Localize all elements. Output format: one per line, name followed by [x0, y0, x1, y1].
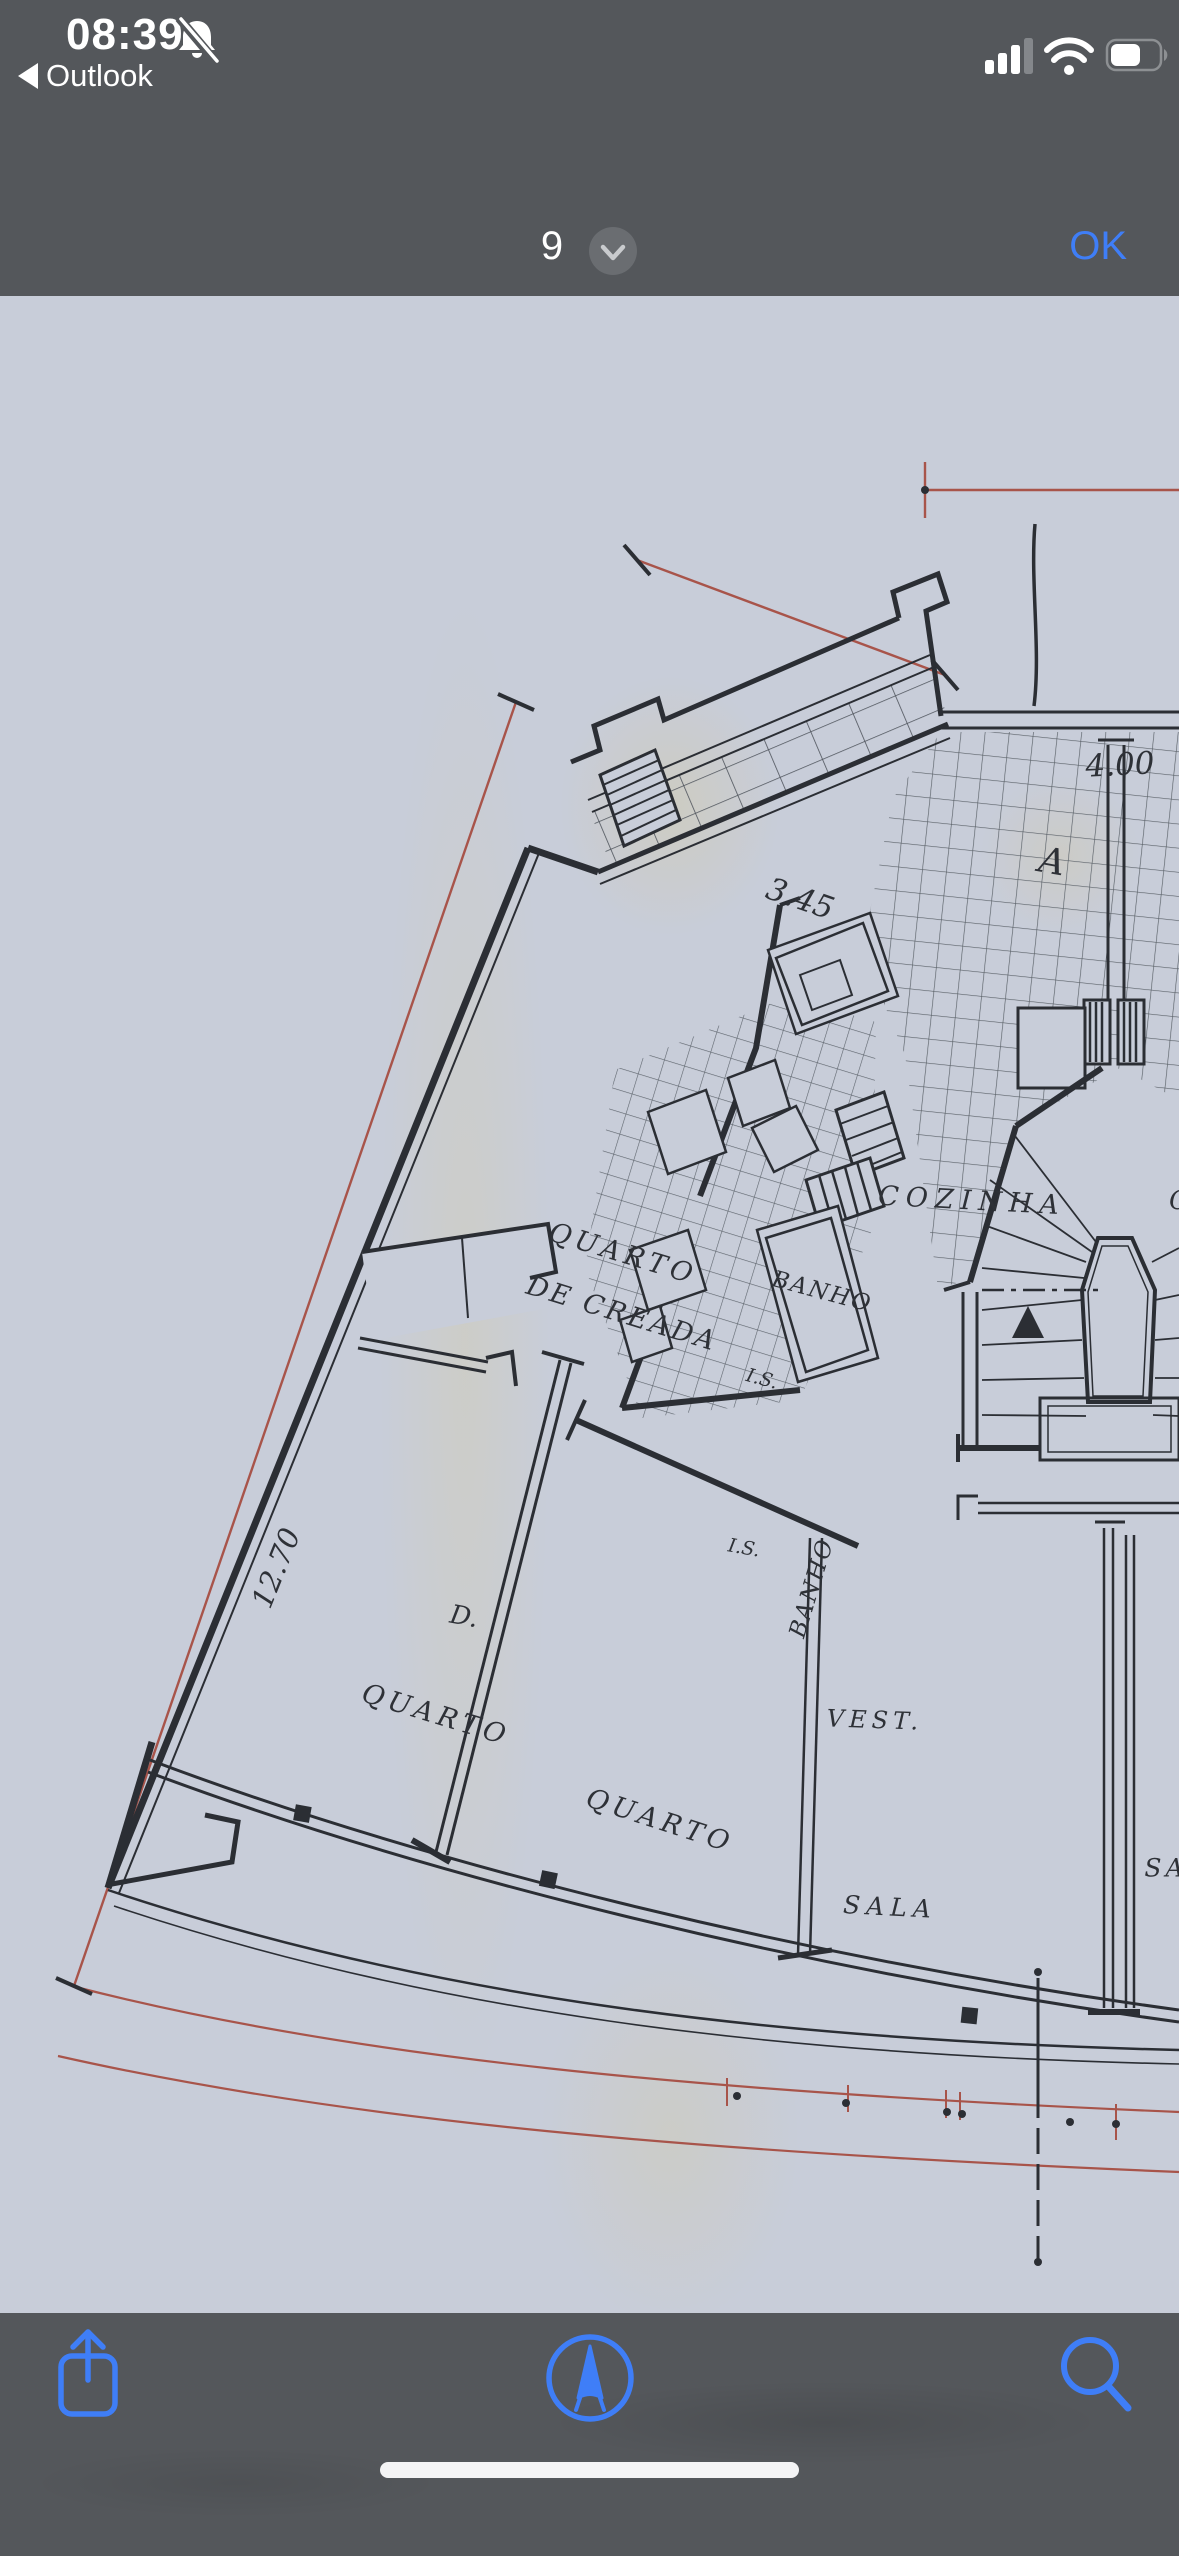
room-label-living-partial: SA: [1144, 1854, 1179, 1883]
back-to-outlook[interactable]: Outlook: [18, 58, 153, 94]
ok-button[interactable]: OK: [1069, 224, 1127, 269]
page-dropdown-button[interactable]: [589, 227, 637, 275]
cellular-signal-icon: [985, 38, 1033, 74]
floor-plan-document[interactable]: 4.00 A 3.45 COZINHA C QUARTO DE CREADA B…: [0, 296, 1179, 2313]
page-indicator: 9: [530, 224, 574, 269]
search-button[interactable]: [1056, 2334, 1138, 2420]
clock: 08:39: [66, 10, 184, 60]
notifications-off-icon: [172, 16, 222, 71]
wifi-icon: [1047, 40, 1091, 75]
dim-4-00: 4.00: [1085, 745, 1156, 785]
room-label-living: SALA: [842, 1890, 937, 1924]
status-nav-bar: 08:39 Outlook: [0, 0, 1179, 296]
home-indicator[interactable]: [380, 2462, 799, 2478]
room-label-closet: D.: [448, 1600, 481, 1634]
room-label-kitchen-partial: C: [1169, 1186, 1179, 1216]
room-label-vestibule: VEST.: [826, 1704, 923, 1735]
chevron-down-icon: [603, 247, 623, 258]
battery-icon: [1107, 40, 1167, 70]
share-button[interactable]: [56, 2328, 120, 2420]
markup-button[interactable]: [544, 2332, 636, 2424]
iphone-screen: 08:39 Outlook: [0, 0, 1179, 2556]
share-icon: [61, 2332, 115, 2414]
back-arrow-icon: [18, 63, 38, 89]
search-icon: [1064, 2340, 1128, 2408]
markup-pen-icon: [549, 2337, 631, 2419]
